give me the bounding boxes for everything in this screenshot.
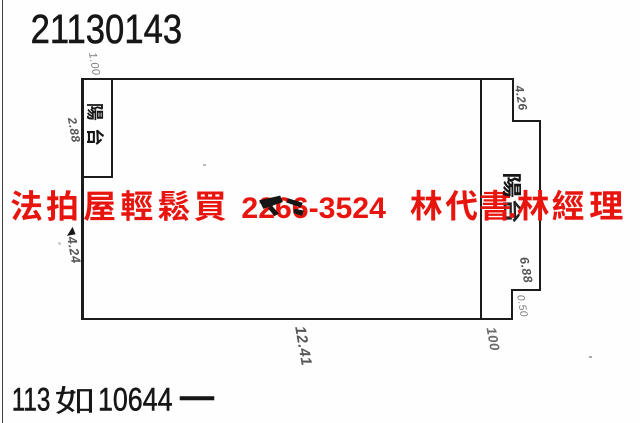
- svg-text:113: 113: [12, 381, 51, 417]
- svg-text:21130143: 21130143: [31, 6, 183, 52]
- svg-text:10644: 10644: [98, 381, 173, 417]
- svg-text:2266-3524: 2266-3524: [241, 193, 386, 225]
